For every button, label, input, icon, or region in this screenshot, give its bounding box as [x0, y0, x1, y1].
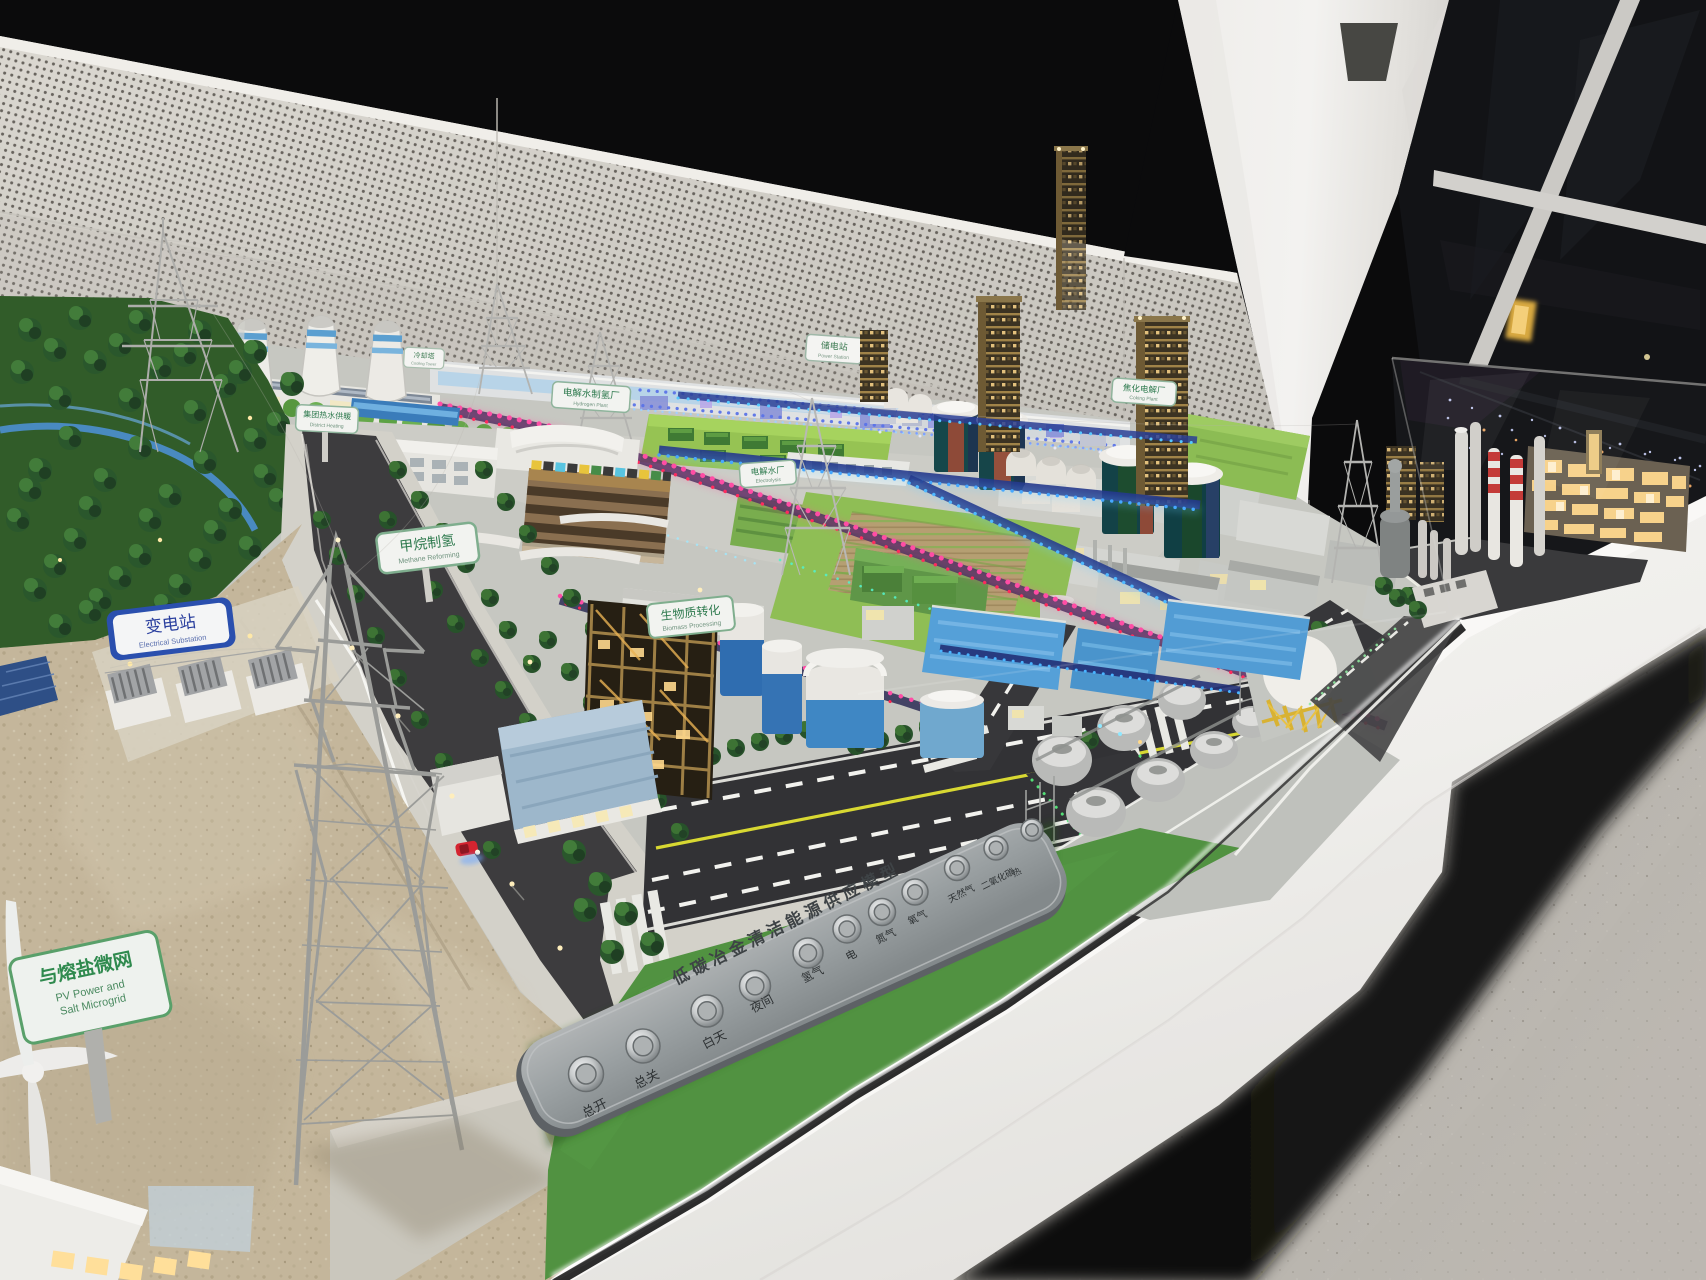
svg-text:储电站: 储电站: [820, 339, 848, 352]
